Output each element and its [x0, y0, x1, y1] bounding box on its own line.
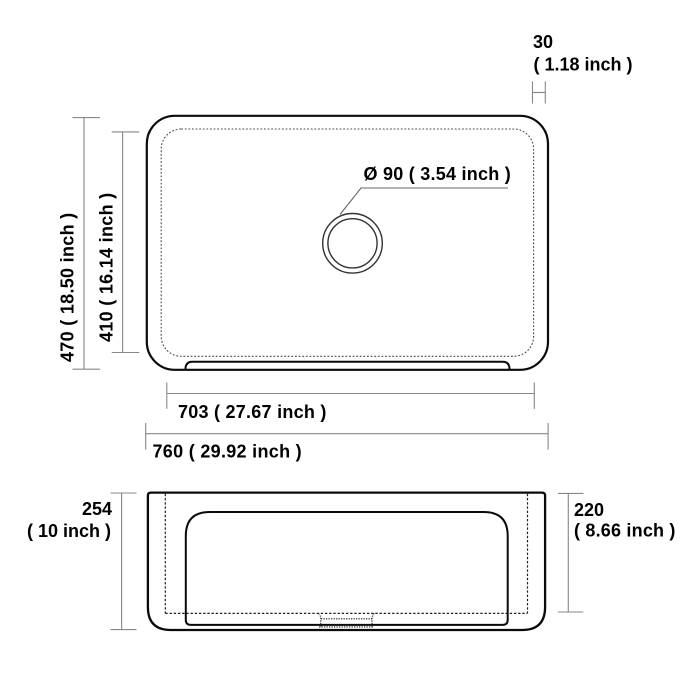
svg-text:( 10 inch ): ( 10 inch )	[27, 521, 111, 541]
svg-text:410 ( 16.14 inch ): 410 ( 16.14 inch )	[97, 193, 117, 342]
svg-text:703 ( 27.67 inch ): 703 ( 27.67 inch )	[178, 402, 327, 422]
svg-text:760 ( 29.92 inch ): 760 ( 29.92 inch )	[153, 442, 302, 462]
svg-text:( 8.66 inch ): ( 8.66 inch )	[574, 521, 676, 541]
svg-text:470 ( 18.50 inch ): 470 ( 18.50 inch )	[58, 213, 78, 362]
svg-text:220: 220	[574, 500, 604, 520]
svg-text:30: 30	[533, 32, 553, 52]
svg-text:254: 254	[82, 499, 112, 519]
svg-text:( 1.18 inch ): ( 1.18 inch )	[534, 55, 633, 75]
svg-text:Ø 90 ( 3.54 inch ): Ø 90 ( 3.54 inch )	[364, 164, 512, 184]
